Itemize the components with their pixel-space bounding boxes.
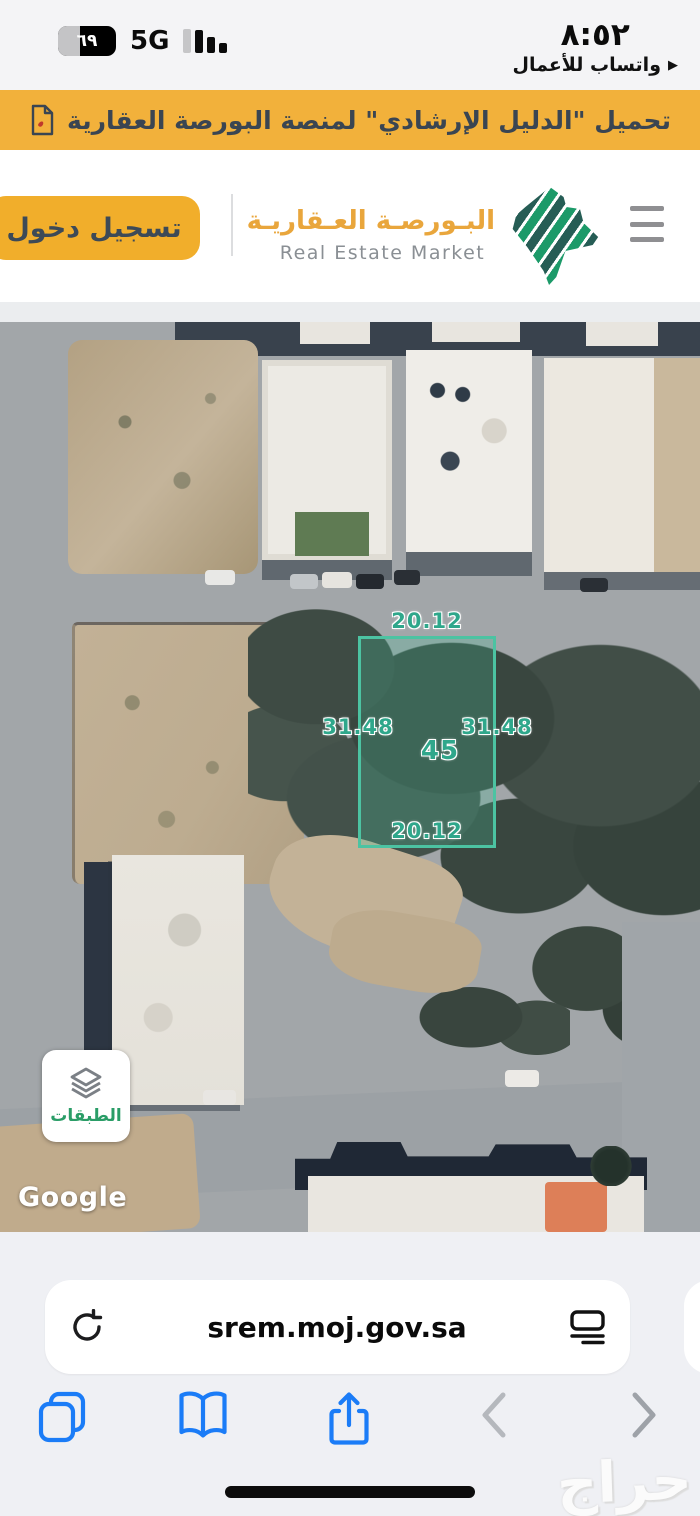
map-car: [505, 1070, 539, 1087]
battery-icon: ٦٩: [58, 26, 116, 56]
brand-home-link[interactable]: البـورصـة العـقاريـة Real Estate Market: [270, 180, 600, 290]
chevron-left-icon: [480, 1390, 508, 1440]
chevron-right-icon: [630, 1390, 658, 1440]
brand-name-arabic: البـورصـة العـقاريـة: [270, 206, 495, 236]
site-header: تسجيل دخول البـورصـة العـقاريـة Real Est…: [0, 150, 700, 302]
map-car: [394, 570, 420, 585]
map-building: [586, 322, 658, 346]
map-building-shadow: [544, 572, 700, 590]
google-watermark: Google: [18, 1182, 127, 1213]
bookmarks-button[interactable]: [176, 1390, 230, 1440]
reload-button[interactable]: [69, 1309, 105, 1345]
map-building: [432, 322, 520, 342]
status-bar: ٦٩ 5G ٨:٥٢ واتساب للأعمال ▶: [0, 0, 700, 90]
header-map-gap: [0, 302, 700, 322]
map-car: [322, 572, 352, 588]
parcel-dimension-right: 31.48: [461, 715, 532, 739]
reload-icon: [69, 1309, 105, 1345]
parcel-dimension-bottom: 20.12: [391, 819, 462, 843]
browser-chrome: srem.moj.gov.sa: [0, 1232, 700, 1516]
layers-icon: [66, 1066, 106, 1100]
forward-button[interactable]: [630, 1390, 658, 1440]
address-bar[interactable]: srem.moj.gov.sa: [45, 1280, 630, 1374]
signal-bars-icon: [183, 29, 227, 53]
map-empty-lot: [68, 340, 258, 574]
url-field[interactable]: srem.moj.gov.sa: [105, 1311, 569, 1344]
map-building: [300, 322, 370, 344]
reader-icon: [569, 1309, 606, 1345]
status-right-cluster: ٨:٥٢ واتساب للأعمال ▶: [512, 18, 678, 76]
parcel-dimension-left: 31.48: [322, 715, 393, 739]
map-car: [356, 574, 384, 589]
download-guide-banner[interactable]: تحميل "الدليل الإرشادي" لمنصة البورصة ال…: [0, 90, 700, 150]
tabs-icon: [36, 1390, 88, 1444]
brand-text: البـورصـة العـقاريـة Real Estate Market: [270, 206, 495, 264]
network-type-label: 5G: [130, 26, 169, 56]
status-left-cluster: ٦٩ 5G: [58, 26, 227, 56]
map-car: [203, 1090, 236, 1105]
header-divider: [231, 194, 233, 256]
return-to-app-banner[interactable]: واتساب للأعمال ▶: [512, 54, 678, 76]
pdf-file-icon: [29, 104, 55, 136]
book-icon: [176, 1390, 230, 1440]
reader-menu-button[interactable]: [569, 1309, 606, 1345]
brand-name-english: Real Estate Market: [270, 242, 495, 264]
map-orange-roof: [545, 1182, 607, 1232]
map-car: [205, 570, 235, 585]
map-building: [544, 358, 700, 572]
map-palm-tree: [590, 1146, 632, 1186]
banner-text: تحميل "الدليل الإرشادي" لمنصة البورصة ال…: [67, 106, 671, 135]
share-icon: [326, 1390, 372, 1448]
status-time: ٨:٥٢: [512, 18, 678, 52]
map-building-shadow: [406, 552, 532, 576]
map-building: [406, 350, 532, 552]
return-app-label: واتساب للأعمال: [512, 54, 661, 76]
next-tab-edge[interactable]: [684, 1280, 700, 1374]
return-arrow-icon: ▶: [668, 59, 678, 72]
haraj-watermark: حراج: [556, 1448, 693, 1516]
map-car: [580, 578, 608, 592]
phone-screen: ٦٩ 5G ٨:٥٢ واتساب للأعمال ▶ تحميل "الدلي…: [0, 0, 700, 1516]
map-building: [112, 855, 244, 1105]
saudi-map-logo-icon: [509, 185, 600, 285]
back-button[interactable]: [480, 1390, 508, 1440]
satellite-map[interactable]: 20.12 31.48 31.48 45 20.12 الطبقات Googl…: [0, 322, 700, 1232]
tabs-button[interactable]: [36, 1390, 88, 1444]
home-indicator[interactable]: [225, 1486, 475, 1498]
login-button[interactable]: تسجيل دخول: [0, 196, 200, 260]
parcel-number: 45: [421, 736, 459, 766]
battery-percent: ٦٩: [77, 31, 98, 51]
share-button[interactable]: [326, 1390, 372, 1448]
layers-button[interactable]: الطبقات: [42, 1050, 130, 1142]
map-courtyard: [295, 512, 369, 556]
map-car: [290, 574, 318, 589]
parcel-dimension-top: 20.12: [391, 609, 462, 633]
menu-button[interactable]: [630, 206, 666, 242]
layers-label: الطبقات: [50, 1106, 121, 1126]
